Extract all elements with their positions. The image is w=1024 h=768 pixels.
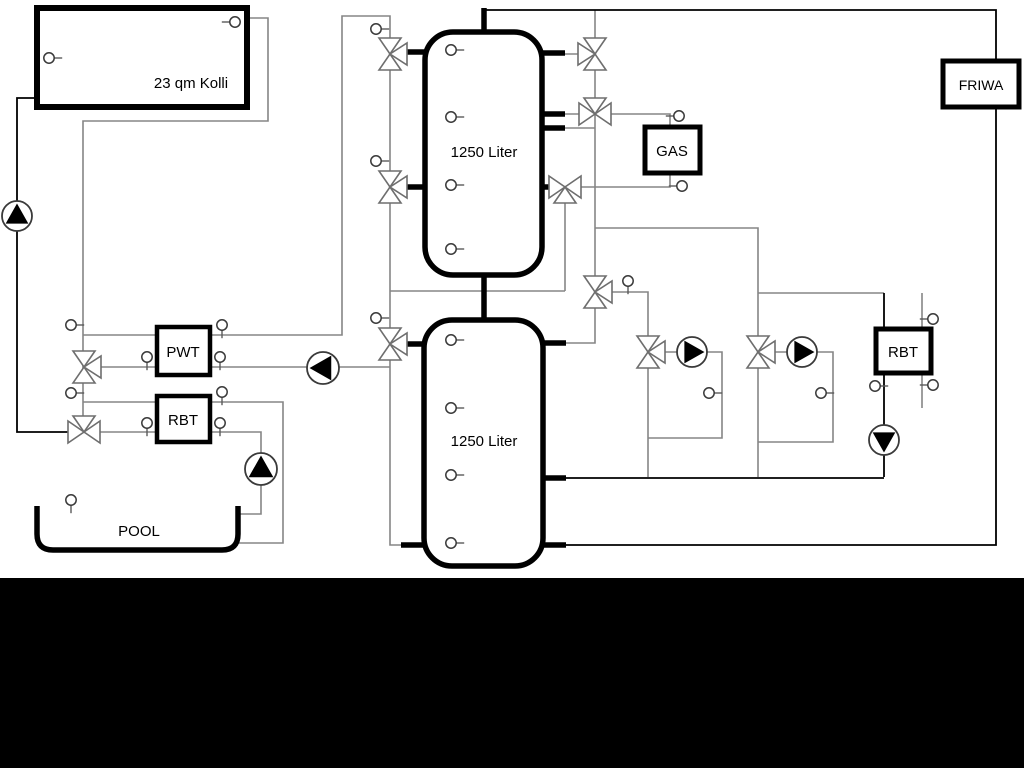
temperature-sensor — [142, 418, 152, 436]
three-way-valve — [379, 171, 407, 203]
temperature-sensor — [704, 388, 722, 398]
temperature-sensor — [371, 24, 389, 34]
gas-label: GAS — [656, 143, 688, 160]
three-way-valve — [584, 276, 612, 308]
three-way-valve — [73, 351, 101, 383]
temperature-sensor — [371, 313, 389, 323]
temperature-sensor — [66, 388, 84, 398]
three-way-valve — [379, 328, 407, 360]
pwt-label: PWT — [166, 344, 199, 361]
pump — [677, 337, 707, 367]
temperature-sensor — [66, 320, 84, 330]
schematic-canvas: 23 qm Kolli 1250 Liter 1250 Liter PWT RB… — [0, 0, 1024, 768]
three-way-valve — [549, 176, 581, 203]
pump — [869, 425, 899, 455]
temperature-sensor — [215, 418, 225, 436]
rbt-left-label: RBT — [168, 412, 198, 429]
three-way-valve — [379, 38, 407, 70]
pump — [245, 453, 277, 485]
pump — [2, 201, 32, 231]
pump — [787, 337, 817, 367]
three-way-valve — [747, 336, 775, 368]
rbt-right-label: RBT — [888, 344, 918, 361]
temperature-sensor — [371, 156, 389, 166]
friwa-label: FRIWA — [959, 77, 1004, 93]
tank1-label: 1250 Liter — [451, 144, 518, 161]
three-way-valve — [68, 416, 100, 443]
temperature-sensor — [816, 388, 834, 398]
temperature-sensor — [870, 381, 888, 391]
hydraulic-schematic: 23 qm Kolli 1250 Liter 1250 Liter PWT RB… — [0, 0, 1024, 768]
temperature-sensor — [669, 181, 687, 191]
three-way-valve — [578, 38, 606, 70]
temperature-sensor — [666, 111, 684, 121]
three-way-valve — [637, 336, 665, 368]
black-bottom-band — [0, 578, 1024, 768]
solar-collector — [37, 8, 247, 107]
pool-label: POOL — [118, 523, 160, 540]
pump — [307, 352, 339, 384]
tank2-label: 1250 Liter — [451, 433, 518, 450]
collector-label: 23 qm Kolli — [154, 75, 228, 92]
